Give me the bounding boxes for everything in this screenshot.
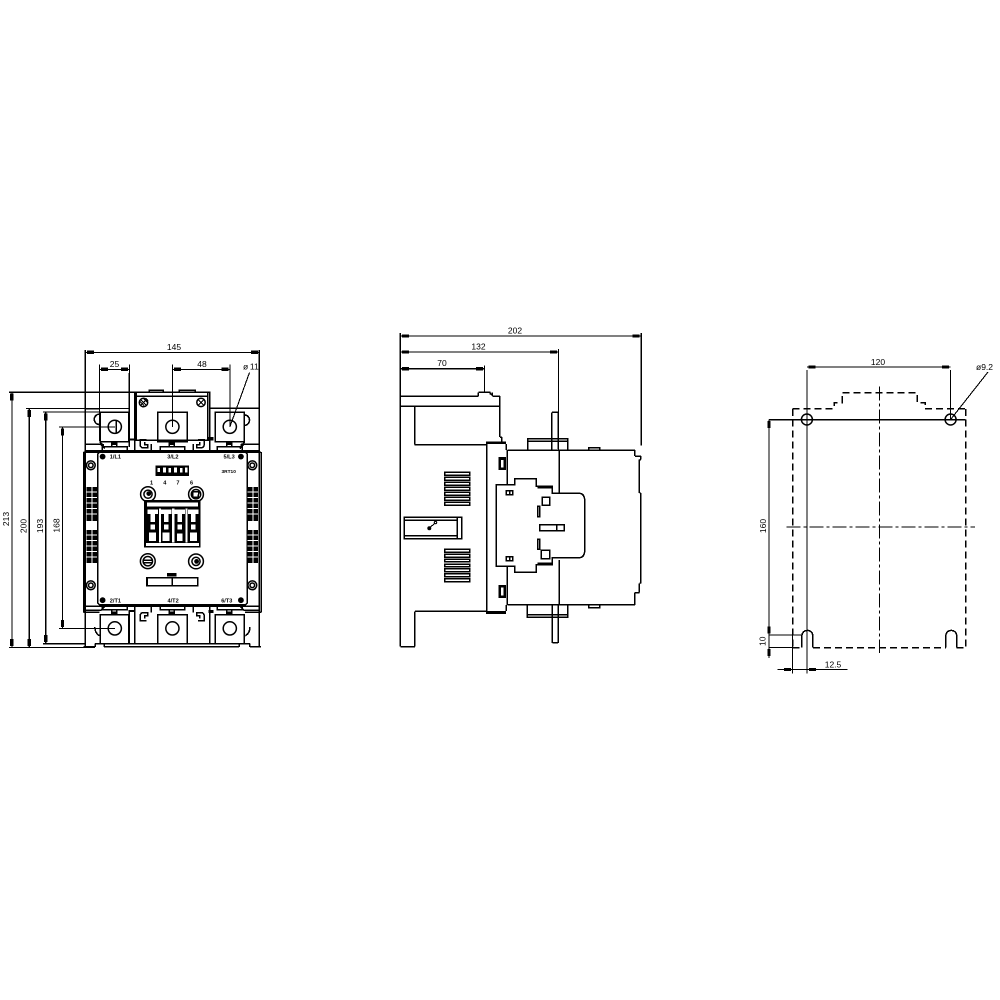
svg-text:4/T2: 4/T2 bbox=[168, 599, 179, 605]
svg-text:6/T3: 6/T3 bbox=[221, 599, 232, 605]
svg-text:70: 70 bbox=[437, 358, 447, 368]
svg-text:120: 120 bbox=[871, 357, 885, 367]
svg-text:132: 132 bbox=[471, 342, 485, 352]
svg-text:3RT10: 3RT10 bbox=[222, 469, 237, 475]
svg-text:2/T1: 2/T1 bbox=[110, 599, 121, 605]
svg-text:3/L2: 3/L2 bbox=[167, 455, 178, 461]
svg-text:202: 202 bbox=[508, 325, 522, 335]
svg-text:ø9.2: ø9.2 bbox=[976, 362, 993, 372]
svg-text:25: 25 bbox=[110, 359, 120, 369]
svg-text:168: 168 bbox=[52, 518, 62, 532]
svg-text:213: 213 bbox=[1, 512, 11, 526]
svg-text:6: 6 bbox=[190, 481, 193, 487]
svg-text:1/L1: 1/L1 bbox=[110, 455, 121, 461]
svg-text:200: 200 bbox=[19, 519, 29, 533]
svg-text:1: 1 bbox=[150, 481, 153, 487]
svg-text:160: 160 bbox=[758, 519, 768, 533]
svg-text:7: 7 bbox=[176, 481, 179, 487]
svg-text:145: 145 bbox=[167, 342, 181, 352]
svg-text:5/L3: 5/L3 bbox=[224, 455, 235, 461]
svg-text:10: 10 bbox=[758, 636, 768, 646]
svg-text:48: 48 bbox=[197, 359, 207, 369]
svg-text:12.5: 12.5 bbox=[825, 659, 842, 669]
svg-text:ø 11: ø 11 bbox=[243, 362, 259, 372]
svg-text:193: 193 bbox=[35, 519, 45, 533]
